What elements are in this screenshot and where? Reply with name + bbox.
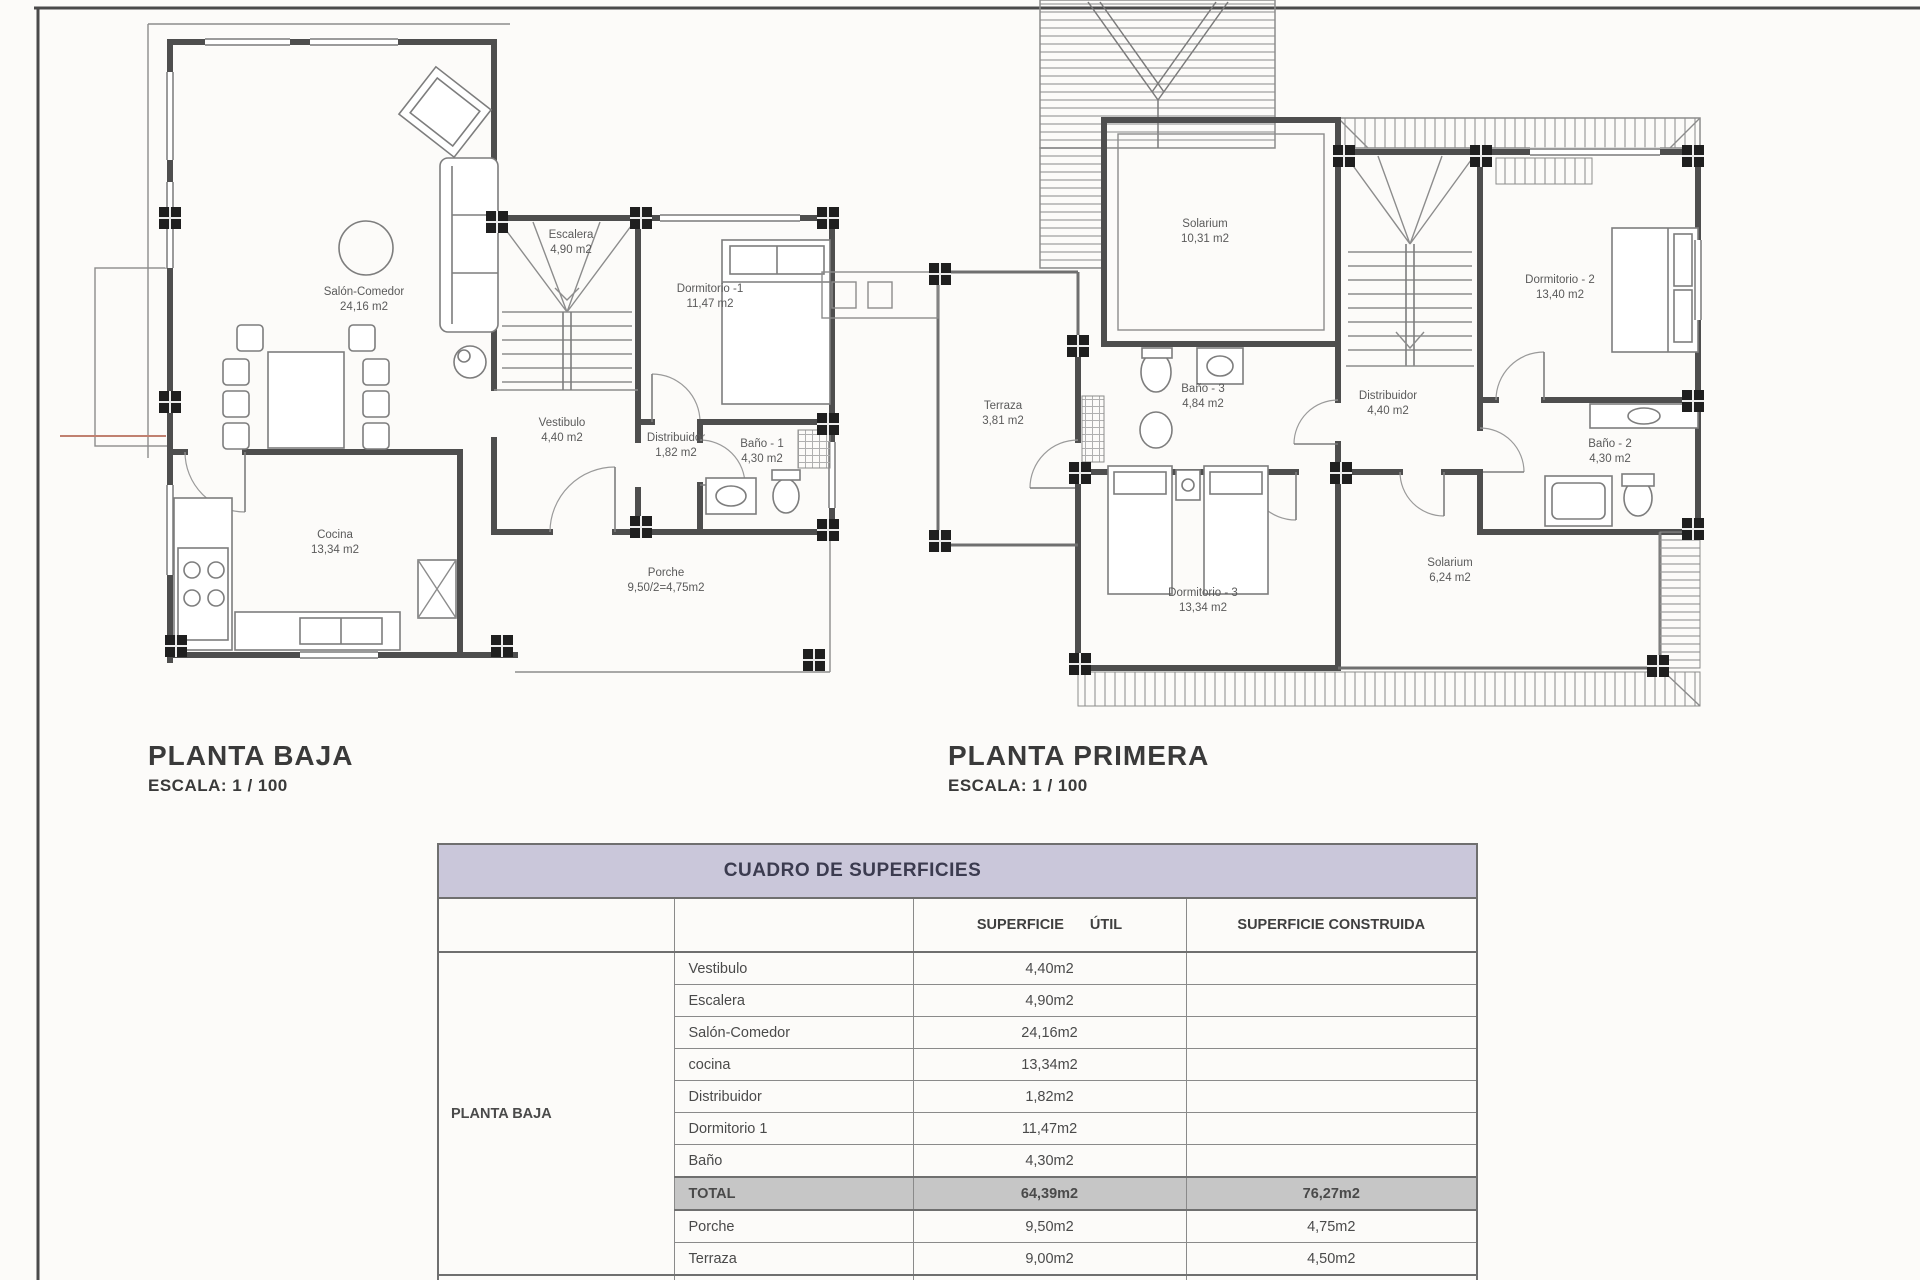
- room-label: Distribuidor1,82 m2: [647, 431, 705, 461]
- ground-floor-scale: ESCALA: 1 / 100: [148, 776, 353, 796]
- cell-room: cocina: [674, 1049, 913, 1081]
- room-label: Baño - 24,30 m2: [1588, 437, 1631, 467]
- cell-room: Vestibulo: [674, 952, 913, 985]
- cell-superficie-construida: 4,75m2: [1186, 1210, 1477, 1243]
- table-row-cutoff: [438, 1275, 1477, 1280]
- first-floor-plan: [822, 0, 1704, 706]
- cell-superficie-util: 9,00m2: [913, 1243, 1186, 1276]
- cell-superficie-construida: 4,50m2: [1186, 1243, 1477, 1276]
- cell-empty: [1186, 1275, 1477, 1280]
- cell-room: Porche: [674, 1210, 913, 1243]
- header-empty-2: [674, 898, 913, 952]
- cell-superficie-construida: [1186, 952, 1477, 985]
- scanned-floor-plan-sheet: Salón-Comedor24,16 m2Escalera4,90 m2Dorm…: [0, 0, 1920, 1280]
- first-floor-title-block: PLANTA PRIMERA ESCALA: 1 / 100: [948, 740, 1209, 796]
- cell-room: Salón-Comedor: [674, 1017, 913, 1049]
- cell-superficie-util: 11,47m2: [913, 1113, 1186, 1145]
- room-label: Escalera4,90 m2: [549, 228, 594, 258]
- room-label: Dormitorio - 313,34 m2: [1168, 586, 1238, 616]
- header-superficie-util: SUPERFICIE ÚTIL: [913, 898, 1186, 952]
- room-label: Dormitorio -111,47 m2: [677, 282, 743, 312]
- header-empty-1: [438, 898, 674, 952]
- cell-superficie-construida: [1186, 1145, 1477, 1178]
- table-row: PLANTA BAJAVestibulo4,40m2: [438, 952, 1477, 985]
- cell-superficie-util: 9,50m2: [913, 1210, 1186, 1243]
- cell-superficie-util: 13,34m2: [913, 1049, 1186, 1081]
- room-label: Solarium10,31 m2: [1181, 217, 1229, 247]
- room-label: Solarium6,24 m2: [1427, 556, 1472, 586]
- cell-superficie-util: 64,39m2: [913, 1177, 1186, 1210]
- ground-floor-plan: [60, 24, 839, 672]
- room-label: Cocina13,34 m2: [311, 528, 359, 558]
- surfaces-table-title: CUADRO DE SUPERFICIES: [438, 844, 1477, 898]
- room-label: Baño - 14,30 m2: [740, 437, 783, 467]
- group-label-planta-baja: PLANTA BAJA: [438, 952, 674, 1275]
- room-label: Terraza3,81 m2: [982, 399, 1024, 429]
- stairs-first: [1346, 156, 1474, 366]
- cell-superficie-util: 24,16m2: [913, 1017, 1186, 1049]
- cell-room: Escalera: [674, 985, 913, 1017]
- room-label: Salón-Comedor24,16 m2: [324, 285, 405, 315]
- cell-superficie-util: 1,82m2: [913, 1081, 1186, 1113]
- cell-room: Terraza: [674, 1243, 913, 1276]
- cell-empty: [674, 1275, 913, 1280]
- header-superficie-construida: SUPERFICIE CONSTRUIDA: [1186, 898, 1477, 952]
- cell-room: TOTAL: [674, 1177, 913, 1210]
- room-label: Dormitorio - 213,40 m2: [1525, 273, 1595, 303]
- cell-room: Baño: [674, 1145, 913, 1178]
- ground-floor-title: PLANTA BAJA: [148, 740, 353, 772]
- cell-superficie-util: 4,30m2: [913, 1145, 1186, 1178]
- first-floor-title: PLANTA PRIMERA: [948, 740, 1209, 772]
- cell-room: Dormitorio 1: [674, 1113, 913, 1145]
- cell-superficie-construida: [1186, 1081, 1477, 1113]
- cell-superficie-construida: [1186, 985, 1477, 1017]
- cell-superficie-util: 4,40m2: [913, 952, 1186, 985]
- cell-superficie-construida: [1186, 1049, 1477, 1081]
- cell-room: Distribuidor: [674, 1081, 913, 1113]
- first-floor-scale: ESCALA: 1 / 100: [948, 776, 1209, 796]
- cell-empty: [913, 1275, 1186, 1280]
- cell-superficie-construida: 76,27m2: [1186, 1177, 1477, 1210]
- cell-superficie-construida: [1186, 1113, 1477, 1145]
- ground-floor-title-block: PLANTA BAJA ESCALA: 1 / 100: [148, 740, 353, 796]
- room-label: Porche9,50/2=4,75m2: [627, 566, 704, 596]
- room-label: Distribuidor4,40 m2: [1359, 389, 1417, 419]
- cell-superficie-construida: [1186, 1017, 1477, 1049]
- surfaces-table: CUADRO DE SUPERFICIES SUPERFICIE ÚTIL SU…: [437, 843, 1478, 1280]
- cell-empty: [438, 1275, 674, 1280]
- room-label: Baño - 34,84 m2: [1181, 382, 1224, 412]
- room-label: Vestibulo4,40 m2: [539, 416, 586, 446]
- cell-superficie-util: 4,90m2: [913, 985, 1186, 1017]
